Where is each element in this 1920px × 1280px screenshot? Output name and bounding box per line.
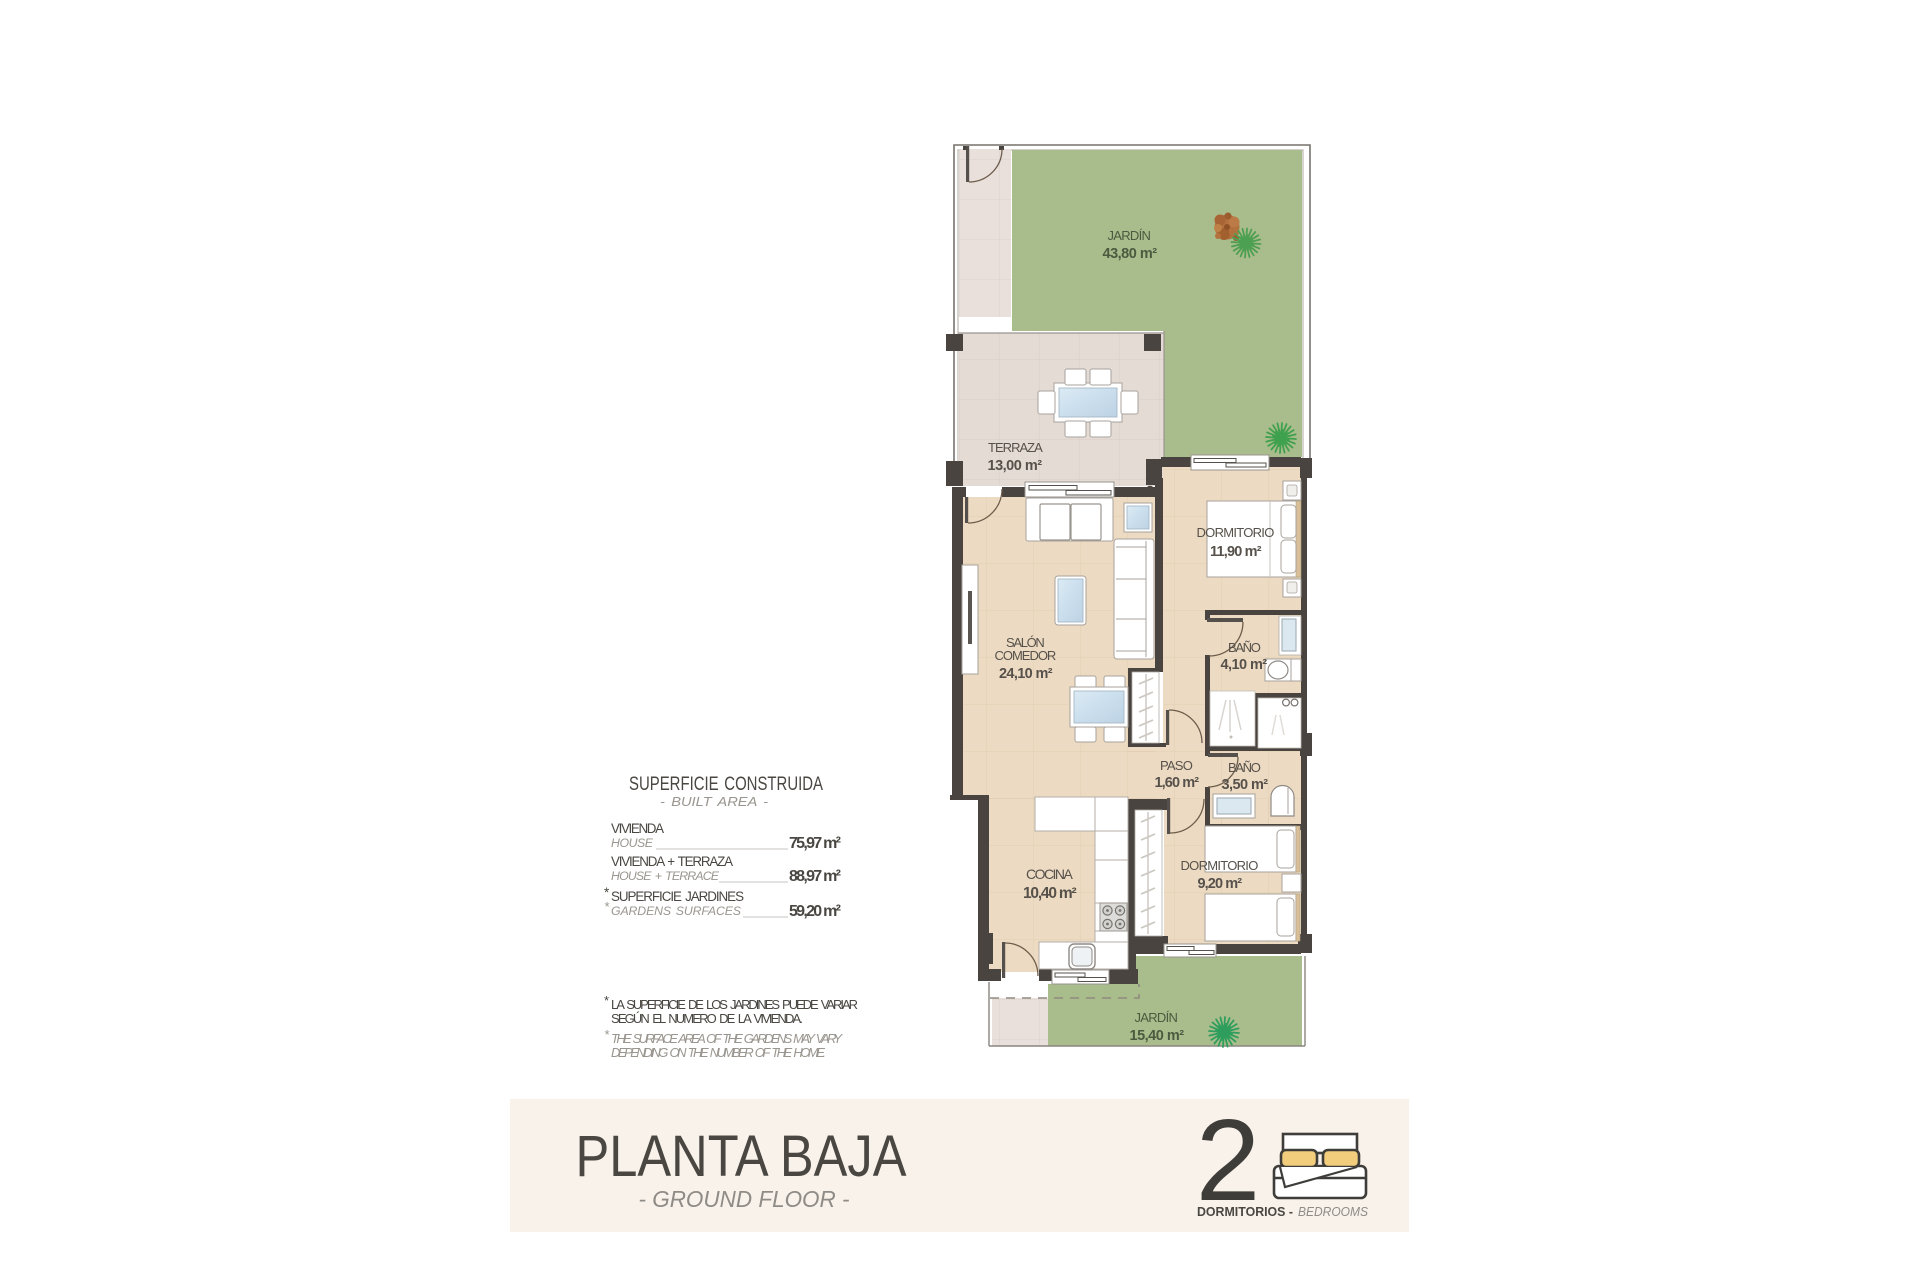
svg-text:THE SURFACE AREA OF THE GARDEN: THE SURFACE AREA OF THE GARDENS MAY VARY [611,1031,843,1046]
svg-text:JARDÍN: JARDÍN [1108,228,1153,243]
svg-text:13,00 m²: 13,00 m² [988,458,1043,474]
svg-text:DORMITORIOS -: DORMITORIOS - [1197,1205,1293,1219]
svg-text:BAÑO: BAÑO [1228,640,1262,655]
svg-text:SEGÚN EL NUMERO DE LA VIVIENDA: SEGÚN EL NUMERO DE LA VIVIENDA. [611,1011,803,1026]
svg-text:GARDENS SURFACES: GARDENS SURFACES [611,904,742,918]
svg-text:3,50 m²: 3,50 m² [1222,777,1269,793]
svg-text:59,20 m²: 59,20 m² [789,903,841,920]
svg-text:SUPERFICIE JARDINES: SUPERFICIE JARDINES [611,889,744,904]
svg-text:TERRAZA: TERRAZA [988,440,1044,455]
svg-text:4,10 m²: 4,10 m² [1221,657,1268,673]
svg-text:75,97 m²: 75,97 m² [789,835,841,852]
svg-text:DEPENDING ON THE NUMBER OF THE: DEPENDING ON THE NUMBER OF THE HOME. [611,1045,826,1060]
svg-text:11,90 m²: 11,90 m² [1210,544,1262,560]
svg-text:HOUSE + TERRACE: HOUSE + TERRACE [611,869,720,883]
svg-text:43,80 m²: 43,80 m² [1103,246,1158,262]
svg-text:- GROUND FLOOR -: - GROUND FLOOR - [639,1186,850,1212]
svg-text:SUPERFICIE CONSTRUIDA: SUPERFICIE CONSTRUIDA [629,773,823,795]
svg-text:PLANTA BAJA: PLANTA BAJA [576,1124,907,1189]
svg-text:BEDROOMS: BEDROOMS [1298,1205,1369,1219]
svg-text:VIVIENDA + TERRAZA: VIVIENDA + TERRAZA [611,854,733,869]
svg-text:COCINA: COCINA [1026,866,1074,882]
svg-text:DORMITORIO: DORMITORIO [1181,858,1260,873]
svg-text:DORMITORIO: DORMITORIO [1197,525,1276,540]
svg-text:VIVIENDA: VIVIENDA [611,821,664,836]
svg-text:- BUILT AREA -: - BUILT AREA - [660,794,769,809]
svg-text:JARDÍN: JARDÍN [1135,1010,1180,1025]
svg-text:9,20 m²: 9,20 m² [1198,876,1243,892]
svg-text:*: * [604,885,609,900]
svg-text:15,40 m²: 15,40 m² [1130,1028,1185,1044]
svg-text:BAÑO: BAÑO [1228,760,1262,775]
svg-text:LA SUPERFICIE DE LOS JARDINES: LA SUPERFICIE DE LOS JARDINES PUEDE VARI… [611,997,858,1012]
svg-text:10,40 m²: 10,40 m² [1023,885,1077,902]
svg-text:PASO: PASO [1160,758,1194,773]
svg-text:24,10 m²: 24,10 m² [999,666,1053,682]
svg-text:1,60 m²: 1,60 m² [1155,775,1200,791]
svg-text:*: * [604,993,609,1008]
svg-text:HOUSE: HOUSE [611,836,654,850]
svg-text:88,97 m²: 88,97 m² [789,868,841,885]
svg-text:COMEDOR: COMEDOR [995,648,1058,663]
